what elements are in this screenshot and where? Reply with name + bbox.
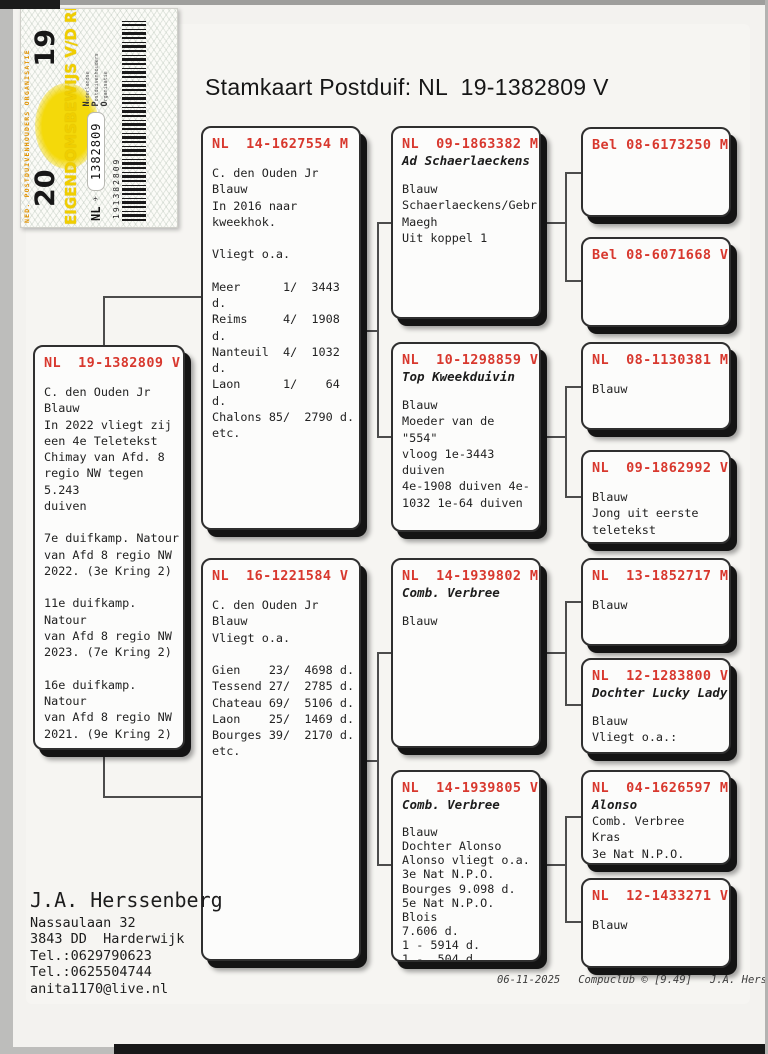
- connector-line: [103, 796, 201, 798]
- pedigree-box-greatgrandparent: NL 04-1626597 M Alonso Comb. Verbree Kra…: [581, 770, 731, 865]
- pedigree-box-greatgrandparent: NL 08-1130381 M Blauw: [581, 342, 731, 430]
- sticker-npo-words: Nederlandse Postduivenhouders Organisati…: [83, 53, 110, 106]
- connector-line: [377, 222, 391, 224]
- pigeon-details: Blauw Jong uit eerste teletekst: [592, 489, 725, 538]
- ring-number: NL 12-1433271 V: [592, 888, 725, 904]
- scan-edge-corner: [0, 0, 60, 9]
- pigeon-details: Blauw: [402, 613, 535, 629]
- pigeon-name: Ad Schaerlaeckens: [402, 153, 535, 168]
- print-footer: 06-11-2025 Compuclub © [9.49] J.A. Herss…: [497, 974, 768, 986]
- connector-line: [541, 436, 565, 438]
- pedigree-box-mother: NL 16-1221584 V C. den Ouden Jr Blauw Vl…: [201, 558, 361, 961]
- scan-edge-bottom: [114, 1044, 768, 1054]
- connector-line: [377, 864, 391, 866]
- owner-name: J.A. Herssenberg: [30, 888, 223, 912]
- pedigree-box-subject: NL 19-1382809 V C. den Ouden Jr Blauw In…: [33, 345, 185, 750]
- connector-line: [361, 760, 377, 762]
- connector-line: [541, 652, 565, 654]
- pigeon-name: Top Kweekduivin: [402, 369, 535, 384]
- ring-number: NL 04-1626597 M: [592, 780, 725, 796]
- connector-line: [103, 296, 201, 298]
- ring-number: Bel 08-6173250 M: [592, 137, 725, 153]
- connector-line: [565, 816, 567, 923]
- connector-line: [361, 330, 377, 332]
- connector-line: [103, 750, 105, 798]
- pigeon-name: Comb. Verbree: [402, 585, 535, 600]
- ring-number: NL 12-1283800 V: [592, 668, 725, 684]
- ring-number: NL 09-1863382 M: [402, 136, 535, 152]
- pedigree-box-greatgrandparent: NL 12-1283800 V Dochter Lucky Lady Blauw…: [581, 658, 731, 754]
- connector-line: [565, 601, 581, 603]
- pigeon-details: Blauw: [592, 917, 725, 933]
- ring-number: NL 14-1627554 M: [212, 136, 355, 152]
- footer-date: 06-11-2025: [497, 974, 560, 986]
- pedigree-box-greatgrandparent: Bel 08-6173250 M: [581, 127, 731, 217]
- connector-line: [565, 280, 581, 282]
- pigeon-name: Comb. Verbree: [402, 797, 535, 812]
- pigeon-details: Blauw: [592, 381, 725, 397]
- ring-number: NL 19-1382809 V: [44, 355, 179, 371]
- sticker-ring-number: 1382809: [87, 112, 105, 192]
- owner-address: Nassaulaan 32 3843 DD Harderwijk Tel.:06…: [30, 915, 223, 997]
- ownership-sticker: NED. POSTDUIVENHOUDERS ORGANISATIE 20 19…: [20, 8, 178, 228]
- pigeon-details: Blauw Vliegt o.a.:: [592, 713, 725, 746]
- barcode-icon: [122, 21, 146, 221]
- npo-word: Postduivenhouders: [92, 53, 101, 106]
- pedigree-box-grandparent: NL 10-1298859 V Top Kweekduivin Blauw Mo…: [391, 342, 541, 532]
- connector-line: [377, 436, 391, 438]
- pedigree-box-father: NL 14-1627554 M C. den Ouden Jr Blauw In…: [201, 126, 361, 530]
- footer-program: Compuclub © [9.49]: [578, 974, 692, 986]
- pigeon-name: Dochter Lucky Lady: [592, 685, 725, 700]
- connector-line: [565, 172, 581, 174]
- pedigree-box-greatgrandparent: NL 09-1862992 V Blauw Jong uit eerste te…: [581, 450, 731, 544]
- sticker-content: NED. POSTDUIVENHOUDERS ORGANISATIE 20 19…: [21, 9, 177, 227]
- sticker-band-text: EIGENDOMSBEWIJS V/D RING: [62, 9, 80, 225]
- ring-number: Bel 08-6071668 V: [592, 247, 725, 263]
- scan-edge-top: [0, 0, 768, 5]
- owner-block: J.A. Herssenberg Nassaulaan 32 3843 DD H…: [30, 888, 223, 997]
- connector-line: [565, 601, 567, 706]
- connector-line: [541, 864, 565, 866]
- sticker-country-code: NL: [89, 207, 103, 221]
- pigeon-details: Comb. Verbree Kras 3e Nat N.P.O. Bourges…: [592, 813, 725, 865]
- pedigree-box-grandparent: NL 14-1939802 M Comb. Verbree Blauw: [391, 558, 541, 748]
- connector-line: [565, 496, 581, 498]
- connector-line: [565, 386, 567, 498]
- connector-line: [565, 704, 581, 706]
- connector-line: [377, 652, 379, 866]
- connector-line: [565, 172, 567, 282]
- pedigree-box-greatgrandparent: NL 12-1433271 V Blauw: [581, 878, 731, 968]
- ring-number: NL 10-1298859 V: [402, 352, 535, 368]
- connector-line: [565, 386, 581, 388]
- page-title: Stamkaart Postduif: NL 19-1382809 V: [205, 74, 609, 101]
- connector-line: [565, 816, 581, 818]
- pedigree-box-greatgrandparent: NL 13-1852717 M Blauw: [581, 558, 731, 646]
- pigeon-details: C. den Ouden Jr Blauw In 2022 vliegt zij…: [44, 384, 179, 750]
- pedigree-box-greatgrandparent: Bel 08-6071668 V: [581, 237, 731, 327]
- ring-number: NL 13-1852717 M: [592, 568, 725, 584]
- connector-line: [103, 296, 105, 345]
- ring-number: NL 09-1862992 V: [592, 460, 725, 476]
- sticker-barcode-number: 191382809: [112, 9, 121, 219]
- ring-number: NL 16-1221584 V: [212, 568, 355, 584]
- ring-number: NL 08-1130381 M: [592, 352, 725, 368]
- npo-word: Organisatie: [101, 53, 110, 106]
- stamkaart-page: NED. POSTDUIVENHOUDERS ORGANISATIE 20 19…: [0, 0, 768, 1054]
- connector-line: [565, 921, 581, 923]
- pigeon-details: Blauw Schaerlaeckens/Gebr. Maegh Uit kop…: [402, 181, 535, 246]
- npo-word: Nederlandse: [83, 53, 92, 106]
- connector-line: [377, 652, 391, 654]
- pigeon-name: Alonso: [592, 797, 725, 812]
- pigeon-details: Blauw: [592, 597, 725, 613]
- sticker-year-20: 20: [31, 169, 61, 207]
- pigeon-details: C. den Ouden Jr Blauw In 2016 naar kweek…: [212, 165, 355, 442]
- pigeon-details: C. den Ouden Jr Blauw Vliegt o.a. Gien 2…: [212, 597, 355, 760]
- pigeon-plane-icon: ✈: [91, 196, 101, 201]
- pedigree-box-grandparent: NL 14-1939805 V Comb. Verbree Blauw Doch…: [391, 770, 541, 962]
- footer-name: J.A. Herssenberg: [710, 974, 768, 986]
- pigeon-details: Blauw Dochter Alonso Alonso vliegt o.a. …: [402, 825, 535, 962]
- ring-number: NL 14-1939805 V: [402, 780, 535, 796]
- connector-line: [541, 222, 565, 224]
- sticker-ring-row: NL ✈ 1382809 Nederlandse Postduivenhoude…: [83, 9, 110, 221]
- sticker-year: 20 19: [31, 9, 61, 227]
- sticker-year-19: 19: [31, 29, 61, 67]
- pedigree-box-grandparent: NL 09-1863382 M Ad Schaerlaeckens Blauw …: [391, 126, 541, 319]
- connector-line: [377, 222, 379, 438]
- ring-number: NL 14-1939802 M: [402, 568, 535, 584]
- pigeon-details: Blauw Moeder van de "554" vloog 1e-3443 …: [402, 397, 535, 511]
